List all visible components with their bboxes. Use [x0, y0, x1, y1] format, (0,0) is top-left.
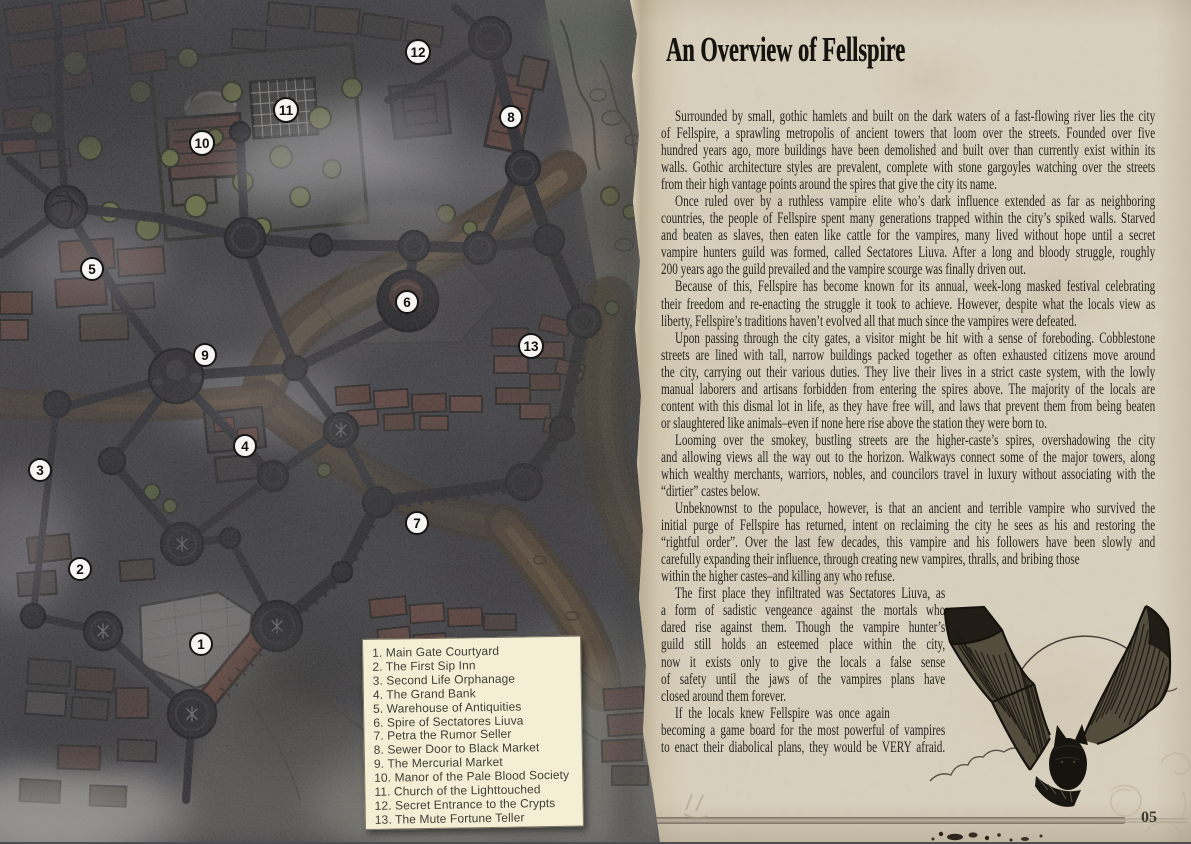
svg-text:12: 12: [410, 45, 425, 60]
svg-text:8: 8: [507, 110, 515, 125]
svg-text:13: 13: [523, 339, 539, 354]
svg-text:3: 3: [36, 463, 44, 478]
svg-text:4: 4: [241, 439, 249, 454]
svg-text:1: 1: [197, 637, 205, 652]
svg-text:10: 10: [194, 136, 209, 151]
svg-text:2: 2: [76, 562, 84, 577]
svg-text:11: 11: [279, 103, 294, 118]
svg-text:6: 6: [403, 295, 411, 310]
svg-text:9: 9: [201, 348, 209, 363]
svg-text:5: 5: [88, 262, 96, 277]
svg-text:7: 7: [413, 516, 421, 531]
